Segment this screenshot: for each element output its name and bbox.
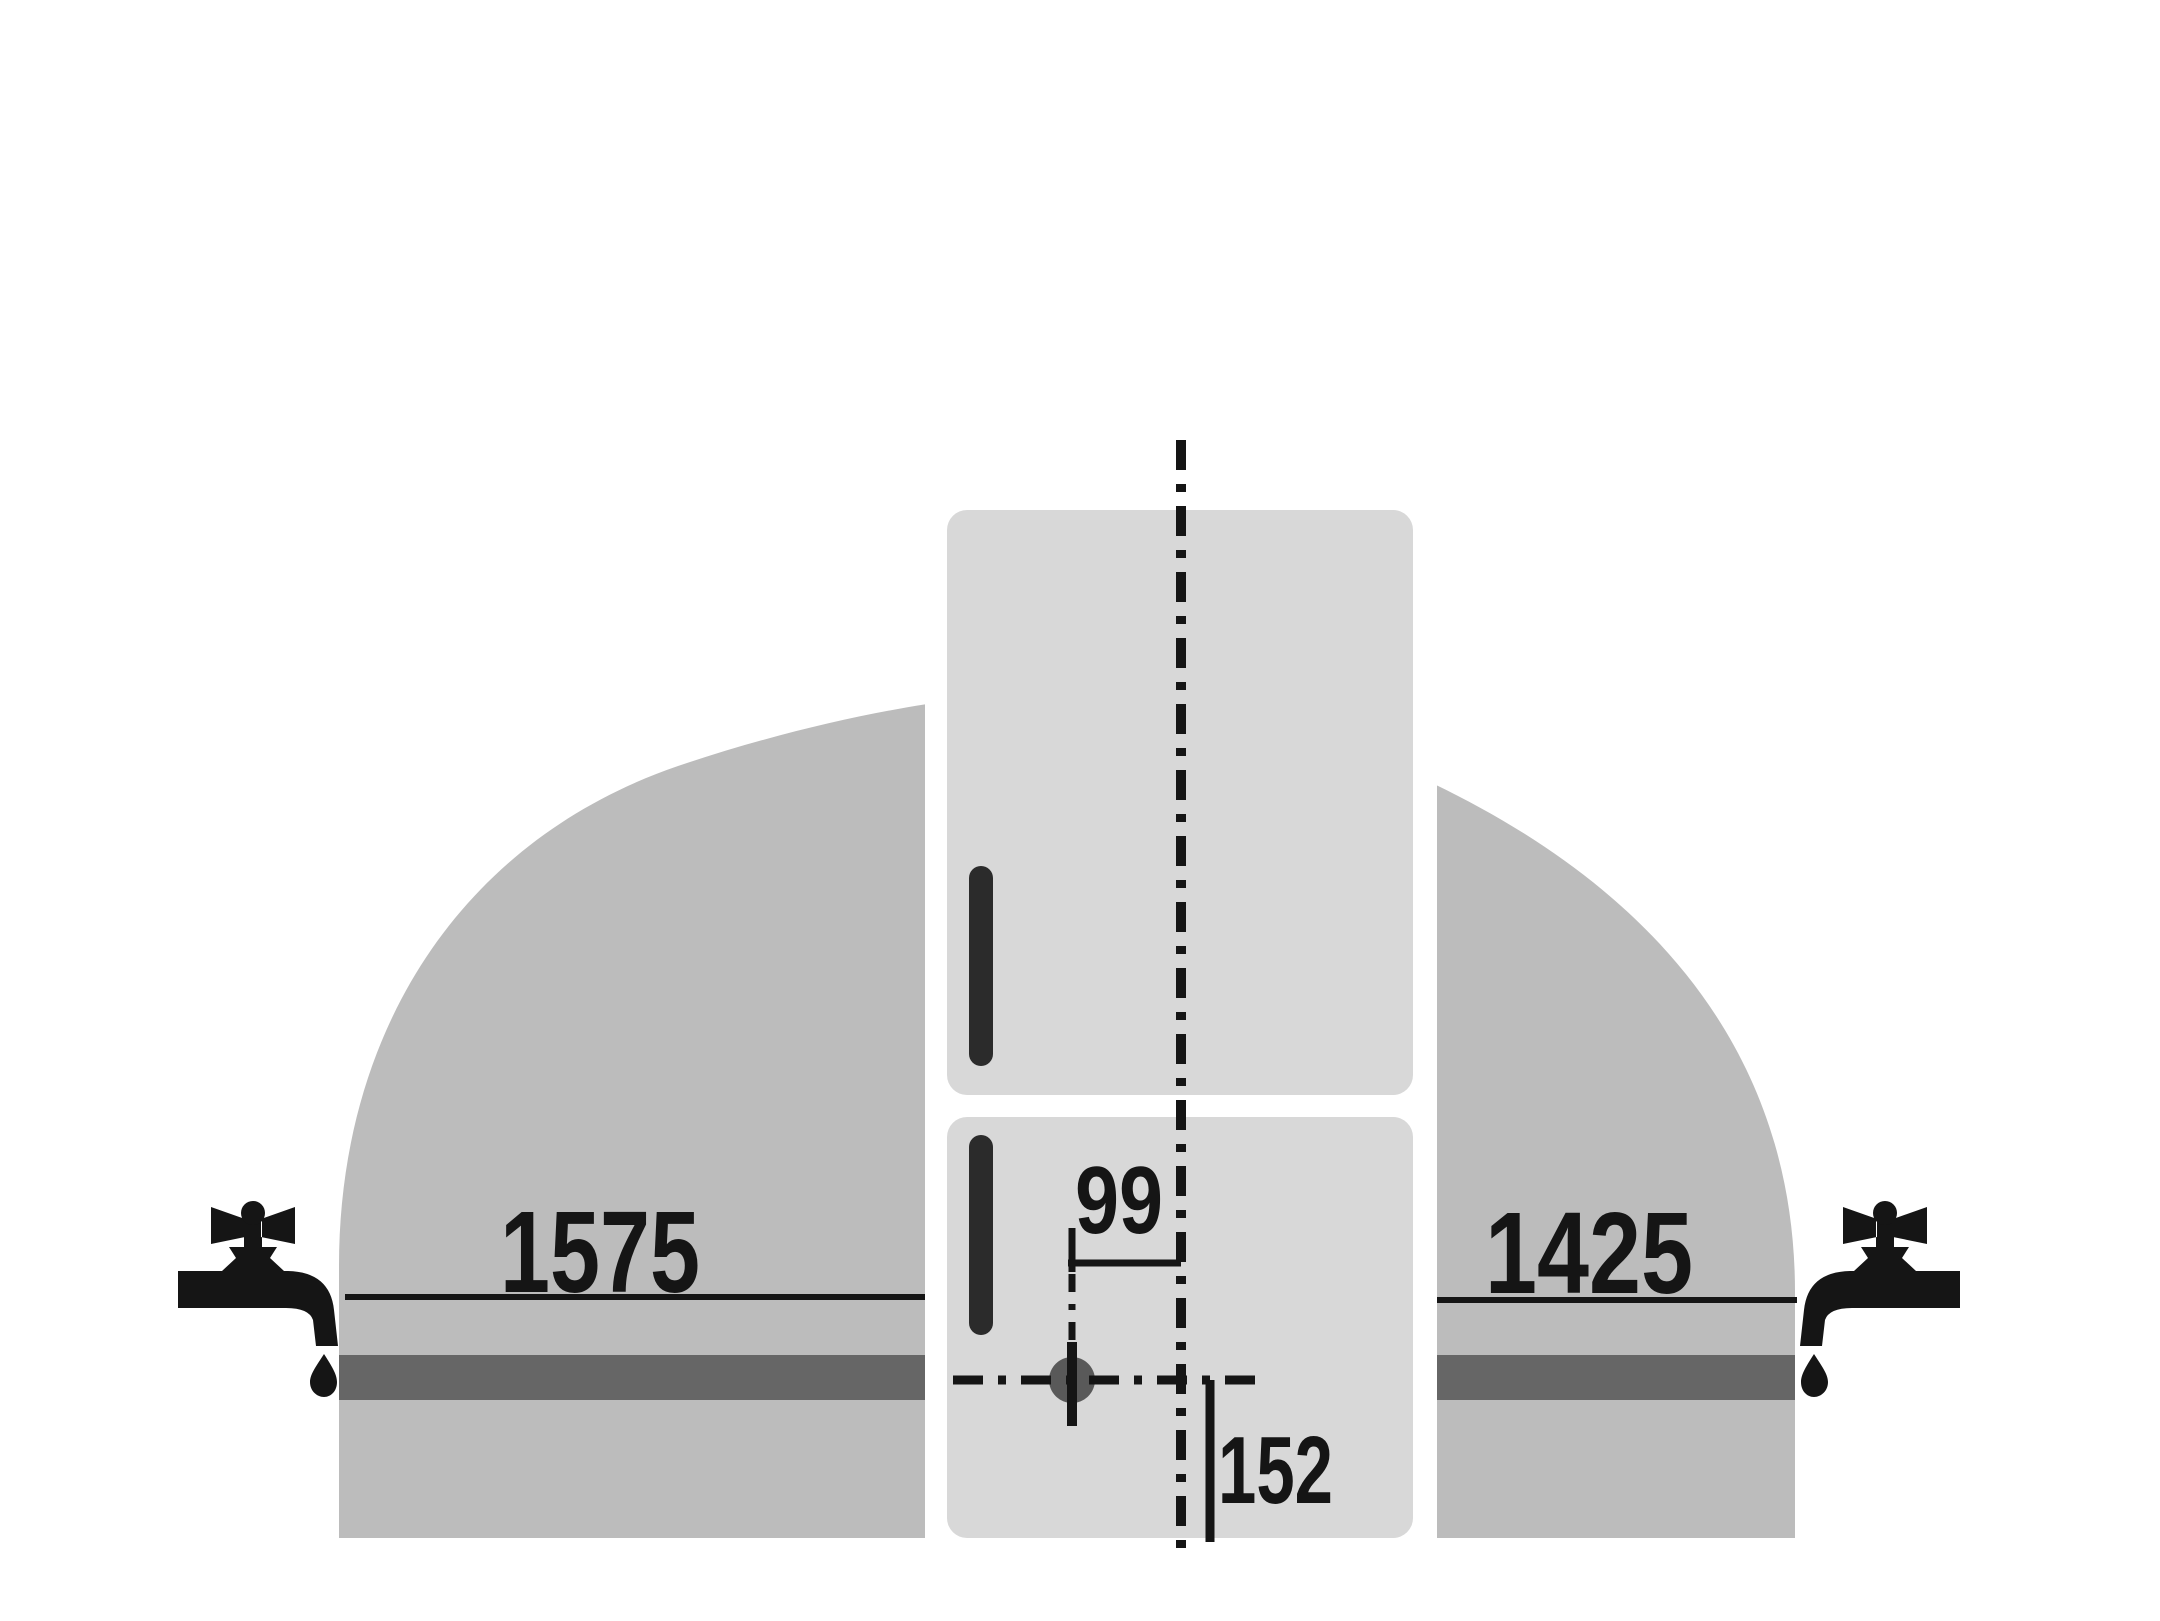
door-handle-upper [969,866,993,1066]
installation-diagram: 1575 1425 99 152 [0,0,2160,1621]
door-handle-lower [969,1135,993,1335]
faucet-neck-icon [222,1247,284,1271]
faucet-icon-right [1800,1201,1960,1397]
dimension-label-horizontal-offset: 99 [1075,1147,1163,1254]
dimension-label-left: 1575 [500,1187,700,1317]
dimension-label-right: 1425 [1485,1188,1693,1318]
diagram-canvas: 1575 1425 99 152 [0,0,2160,1621]
water-drop-icon [310,1354,337,1397]
faucet-body-icon [178,1271,338,1346]
faucet-icon-left [178,1201,338,1397]
faucet-handle-knob-icon [241,1201,265,1225]
dimension-label-vertical-offset: 152 [1218,1417,1333,1524]
